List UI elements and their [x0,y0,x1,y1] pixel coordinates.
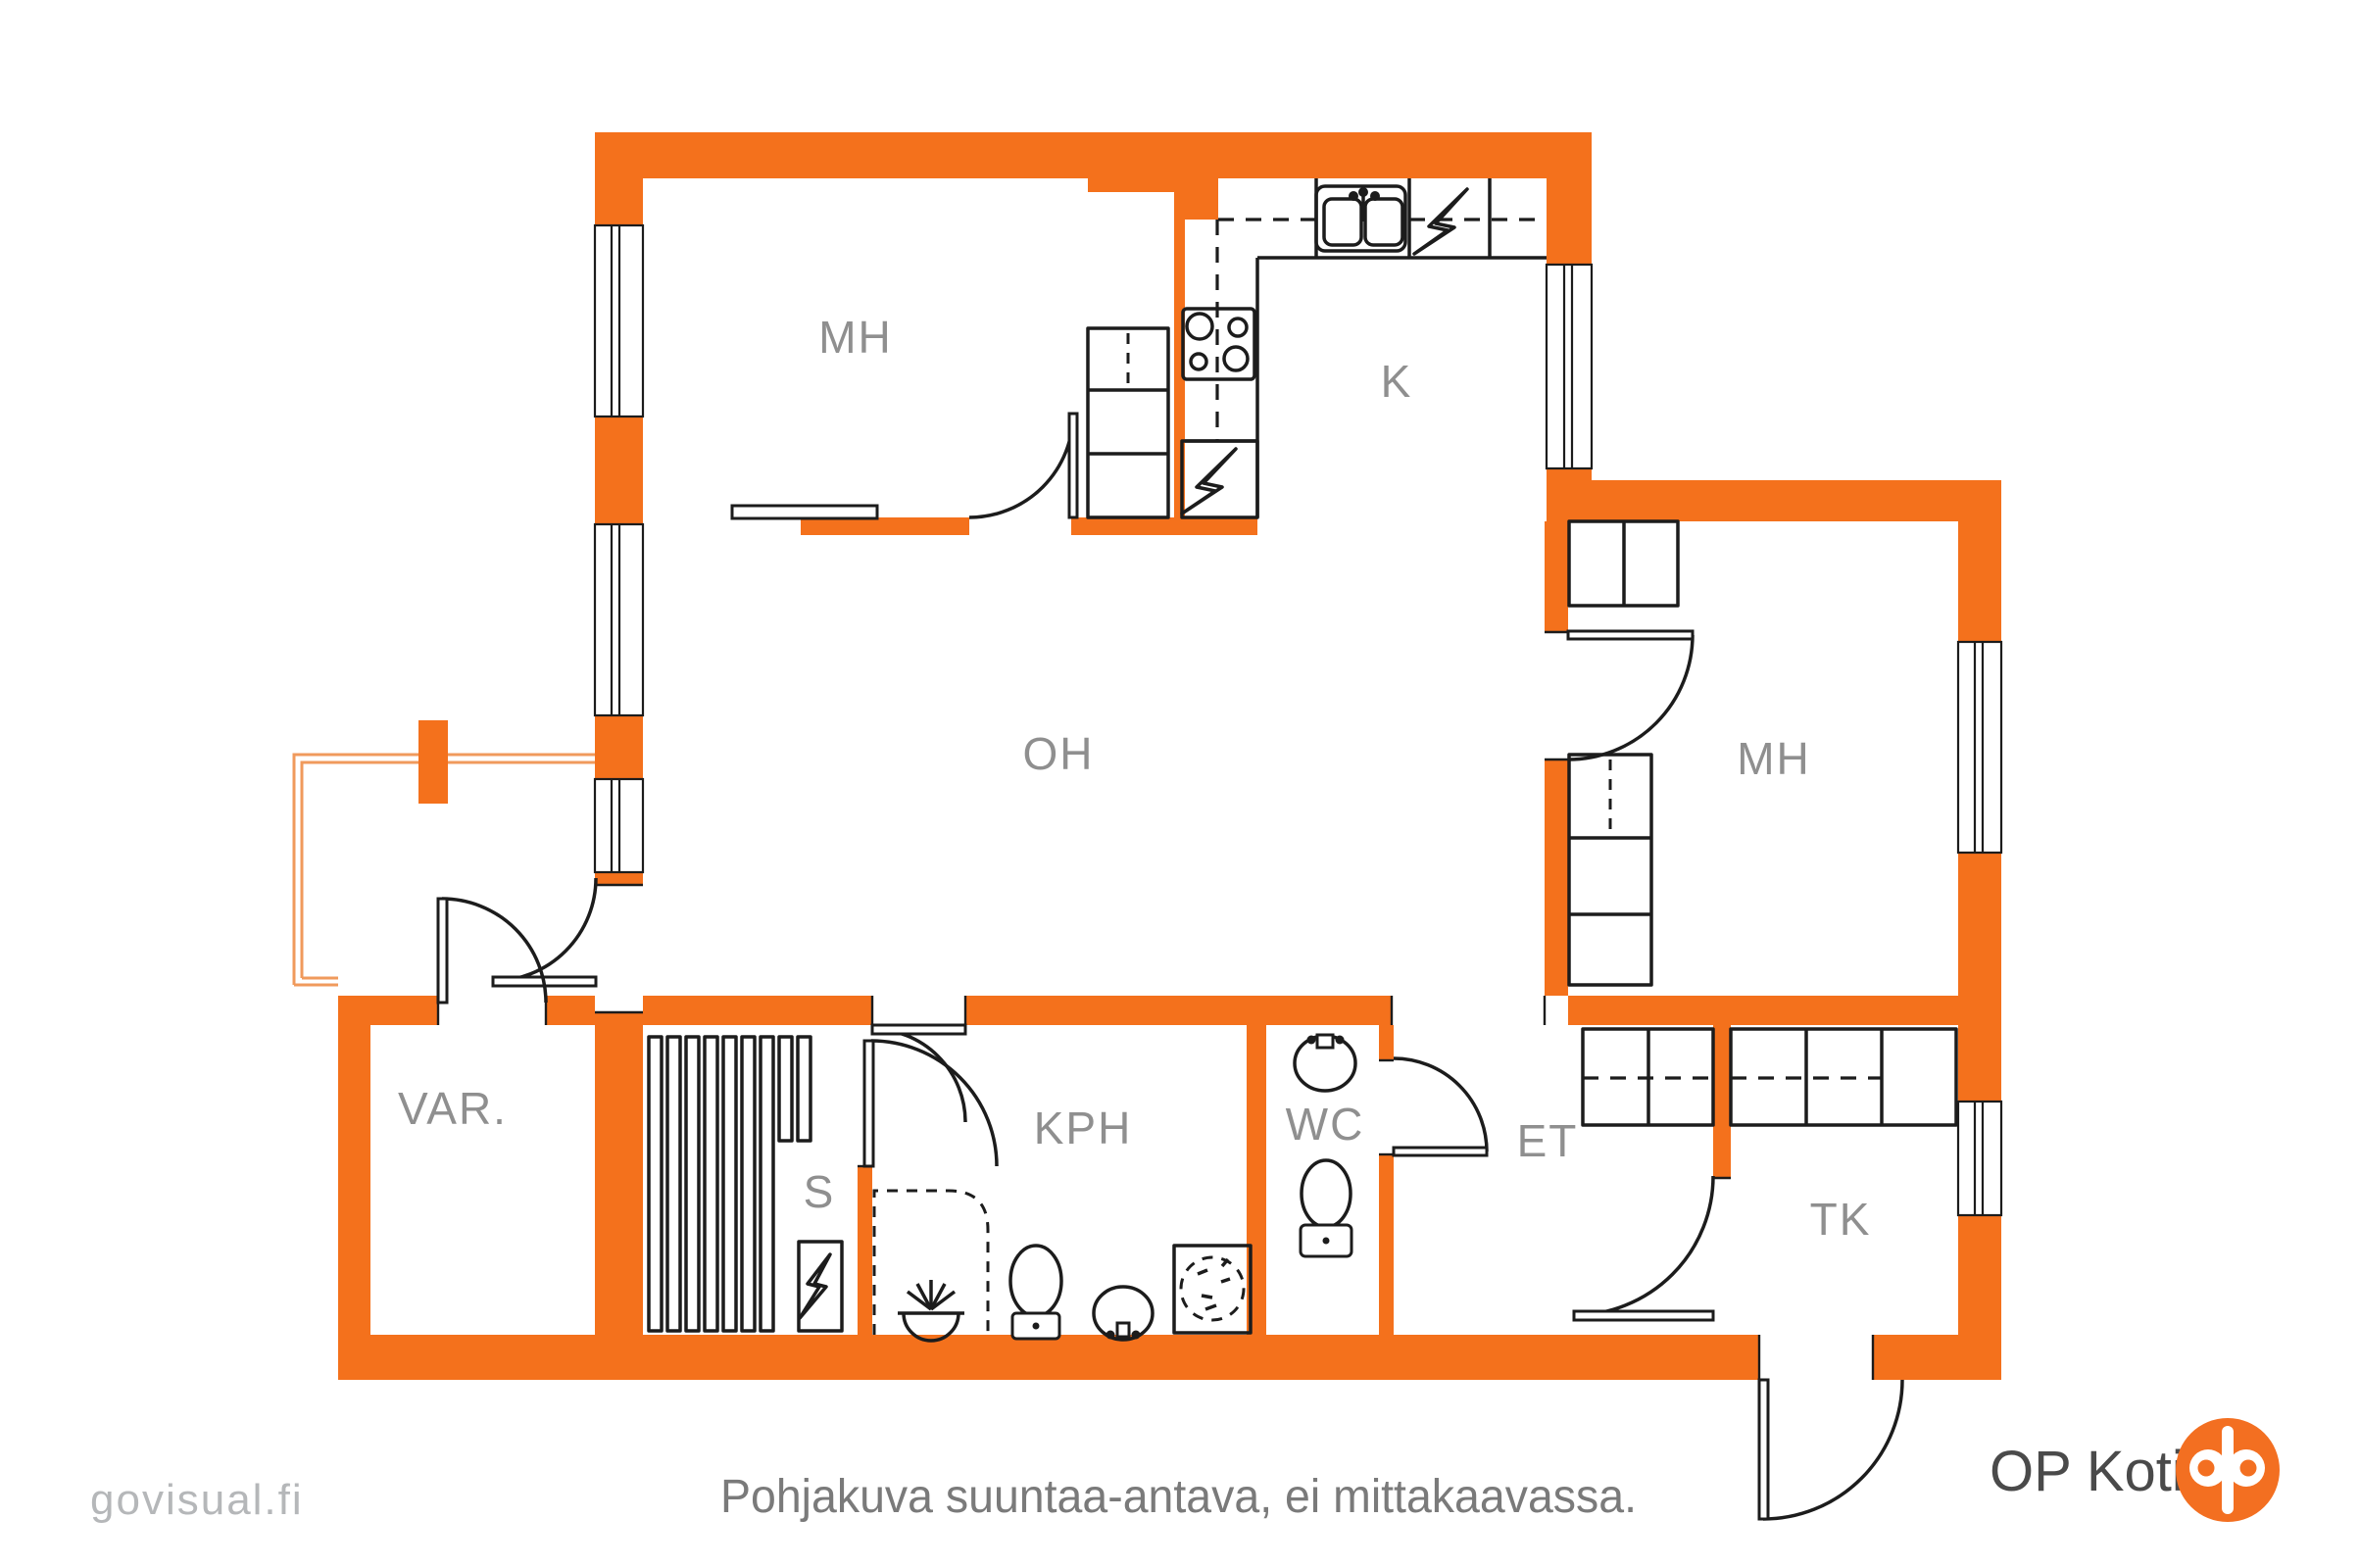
wall-segment [418,720,448,804]
wall-segment [1713,1025,1731,1178]
sauna-heater-icon [799,1242,842,1331]
wall-segment [595,715,643,779]
wardrobe-mh-top-left [1088,328,1168,517]
window-left-c [595,779,643,872]
wall-segment [1379,1154,1394,1335]
wall-segment [595,132,643,225]
door-kph [872,1025,965,1122]
wall-segment [595,872,643,885]
wall-segment [1545,521,1568,632]
wall-segment [595,132,1592,178]
kph-washbasin [1094,1287,1153,1340]
wall-segment [801,517,969,535]
room-label-mh-right: MH [1737,733,1811,784]
door-tk [1574,1176,1713,1320]
window-mh-right [1958,642,2001,853]
washing-machine [1174,1246,1251,1333]
floor-drain-icon [898,1280,964,1341]
wall-segment [1568,996,1958,1025]
room-label-storage: VAR. [398,1083,508,1134]
sliding-door-mh-top-left [732,506,877,518]
sauna-benches [649,1037,811,1331]
wall-segment [858,1166,872,1335]
wall-segment [1088,178,1174,192]
wall-segment [338,1335,1759,1380]
wall-segment [595,416,643,524]
wc-toilet [1301,1160,1352,1256]
watermark-govisual: govisual.fi [90,1476,304,1524]
brand-op-koti-text: OP Koti [1990,1440,2185,1503]
dishwasher-lightning-icon [1414,189,1467,254]
room-label-bathroom: KPH [1034,1102,1133,1153]
caption-text: Pohjakuva suuntaa-antava, ei mittakaavas… [720,1471,1637,1523]
window-left-b [595,524,643,715]
kitchen-sink [1316,186,1405,251]
door-entrance [1759,1380,1902,1519]
room-label-sauna: S [804,1166,836,1217]
door-balcony [493,878,596,986]
wall-segment [595,1012,643,1380]
wall-segment [965,996,1392,1025]
tk-closet [1731,1029,1956,1125]
wall-segment [1071,517,1257,535]
room-label-toilet: WC [1286,1099,1365,1150]
door-mh-right [1568,631,1693,759]
closet-mh-right-top [1569,521,1678,606]
wall-segment [1547,480,2001,521]
wall-segment [1958,853,2001,1102]
window-tk [1958,1102,2001,1215]
room-label-utility: TK [1810,1194,1872,1245]
window-left-a [595,225,643,416]
door-mh-top-left [969,414,1077,517]
wc-washbasin [1295,1035,1355,1091]
wall-segment [1873,1335,2001,1380]
wall-segment [1379,1025,1394,1060]
room-label-kitchen: K [1381,356,1413,407]
floor-plan: MH K OH MH VAR. S KPH WC ET TK govisual.… [0,0,2359,1568]
room-label-living-room: OH [1023,728,1095,779]
wall-segment [1958,521,2001,642]
wall-segment [643,996,872,1025]
wall-segment [338,996,370,1380]
op-logo-icon [2176,1418,2280,1522]
room-label-entry: ET [1517,1115,1579,1166]
door-sauna [864,1041,997,1166]
kph-toilet [1010,1246,1061,1339]
wall-segment [338,996,438,1025]
wall-segment [1547,132,1592,265]
appliance-lightning-icon [1182,441,1257,517]
wall-segment [546,996,595,1025]
wall-segment [1174,178,1218,220]
entry-closet [1583,1029,1713,1125]
wardrobe-mh-right [1569,755,1651,985]
wall-segment [1545,759,1568,996]
door-wc [1394,1058,1487,1155]
window-kitchen-east [1547,265,1592,468]
room-label-mh-top-left: MH [818,312,893,363]
